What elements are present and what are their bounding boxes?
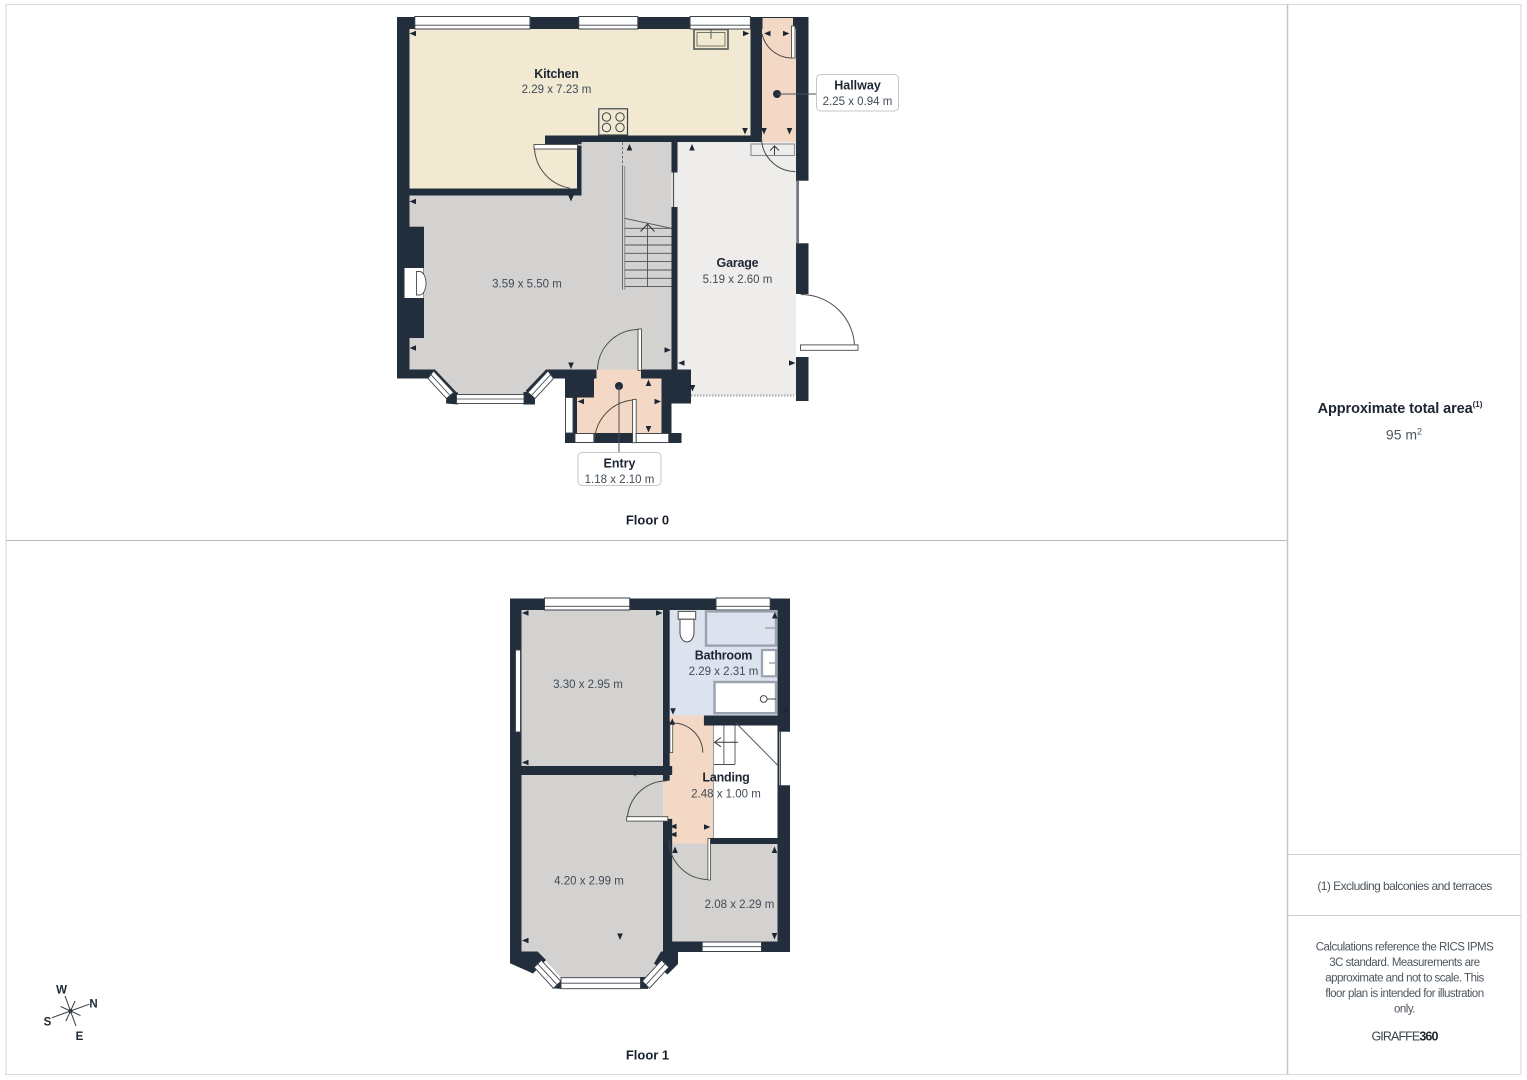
svg-text:Entry: Entry <box>604 457 636 471</box>
svg-text:3.30 x 2.95 m: 3.30 x 2.95 m <box>553 679 623 691</box>
svg-text:Floor 0: Floor 0 <box>626 513 669 528</box>
svg-text:E: E <box>76 1031 84 1043</box>
svg-text:Hallway: Hallway <box>834 79 881 93</box>
svg-text:Calculations reference the RIC: Calculations reference the RICS IPMS <box>1316 941 1494 953</box>
svg-text:5.19 x 2.60 m: 5.19 x 2.60 m <box>703 274 773 286</box>
svg-text:floor plan is intended for ill: floor plan is intended for illustration <box>1325 988 1483 1000</box>
svg-text:Approximate total area(1): Approximate total area(1) <box>1318 400 1483 417</box>
svg-text:Kitchen: Kitchen <box>534 67 578 81</box>
svg-text:Garage: Garage <box>717 256 759 270</box>
svg-text:95 m2: 95 m2 <box>1386 426 1422 442</box>
svg-text:GIRAFFE360: GIRAFFE360 <box>1371 1030 1438 1044</box>
svg-text:S: S <box>44 1017 52 1029</box>
svg-text:(1) Excluding balconies and te: (1) Excluding balconies and terraces <box>1317 879 1492 893</box>
svg-text:Bathroom: Bathroom <box>695 648 753 662</box>
svg-text:Landing: Landing <box>702 771 749 785</box>
svg-text:3C standard. Measurements are: 3C standard. Measurements are <box>1329 957 1480 969</box>
svg-text:approximate and not to scale.: approximate and not to scale. This <box>1325 972 1484 984</box>
svg-text:W: W <box>56 985 67 997</box>
svg-text:2.08 x 2.29 m: 2.08 x 2.29 m <box>705 899 775 911</box>
svg-text:2.29 x 7.23 m: 2.29 x 7.23 m <box>522 84 592 96</box>
svg-text:Floor 1: Floor 1 <box>626 1048 669 1063</box>
svg-text:1.18 x 2.10 m: 1.18 x 2.10 m <box>585 474 655 486</box>
svg-text:4.20 x 2.99 m: 4.20 x 2.99 m <box>554 876 624 888</box>
svg-text:only.: only. <box>1394 1004 1415 1016</box>
svg-text:3.59 x 5.50 m: 3.59 x 5.50 m <box>492 279 562 291</box>
svg-text:2.25 x 0.94 m: 2.25 x 0.94 m <box>823 96 893 108</box>
svg-text:2.29 x 2.31 m: 2.29 x 2.31 m <box>689 666 759 678</box>
svg-text:N: N <box>89 999 97 1011</box>
svg-text:2.48 x 1.00 m: 2.48 x 1.00 m <box>691 788 761 800</box>
